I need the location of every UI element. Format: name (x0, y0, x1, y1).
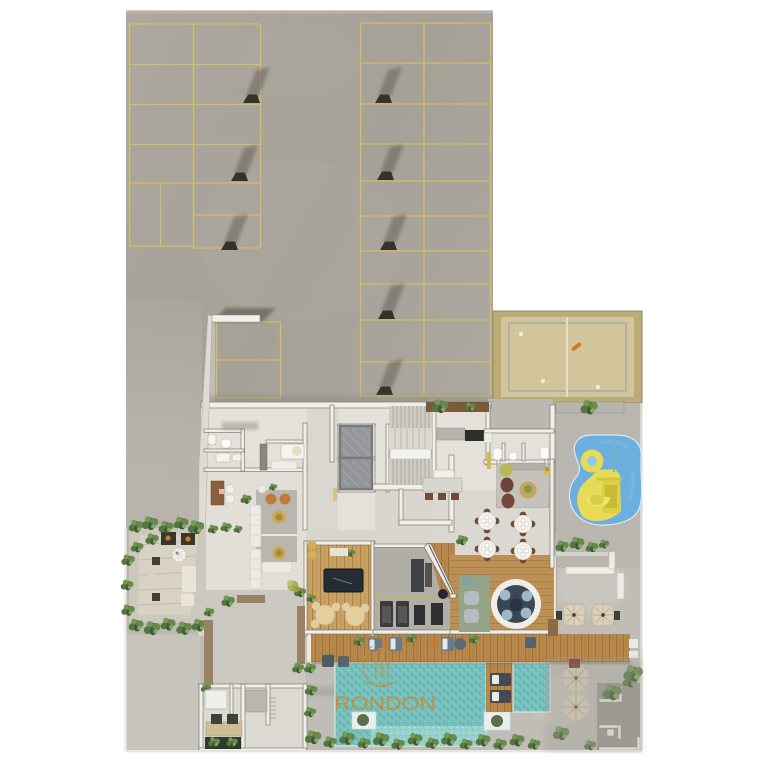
svg-text:RONDON: RONDON (334, 694, 436, 715)
